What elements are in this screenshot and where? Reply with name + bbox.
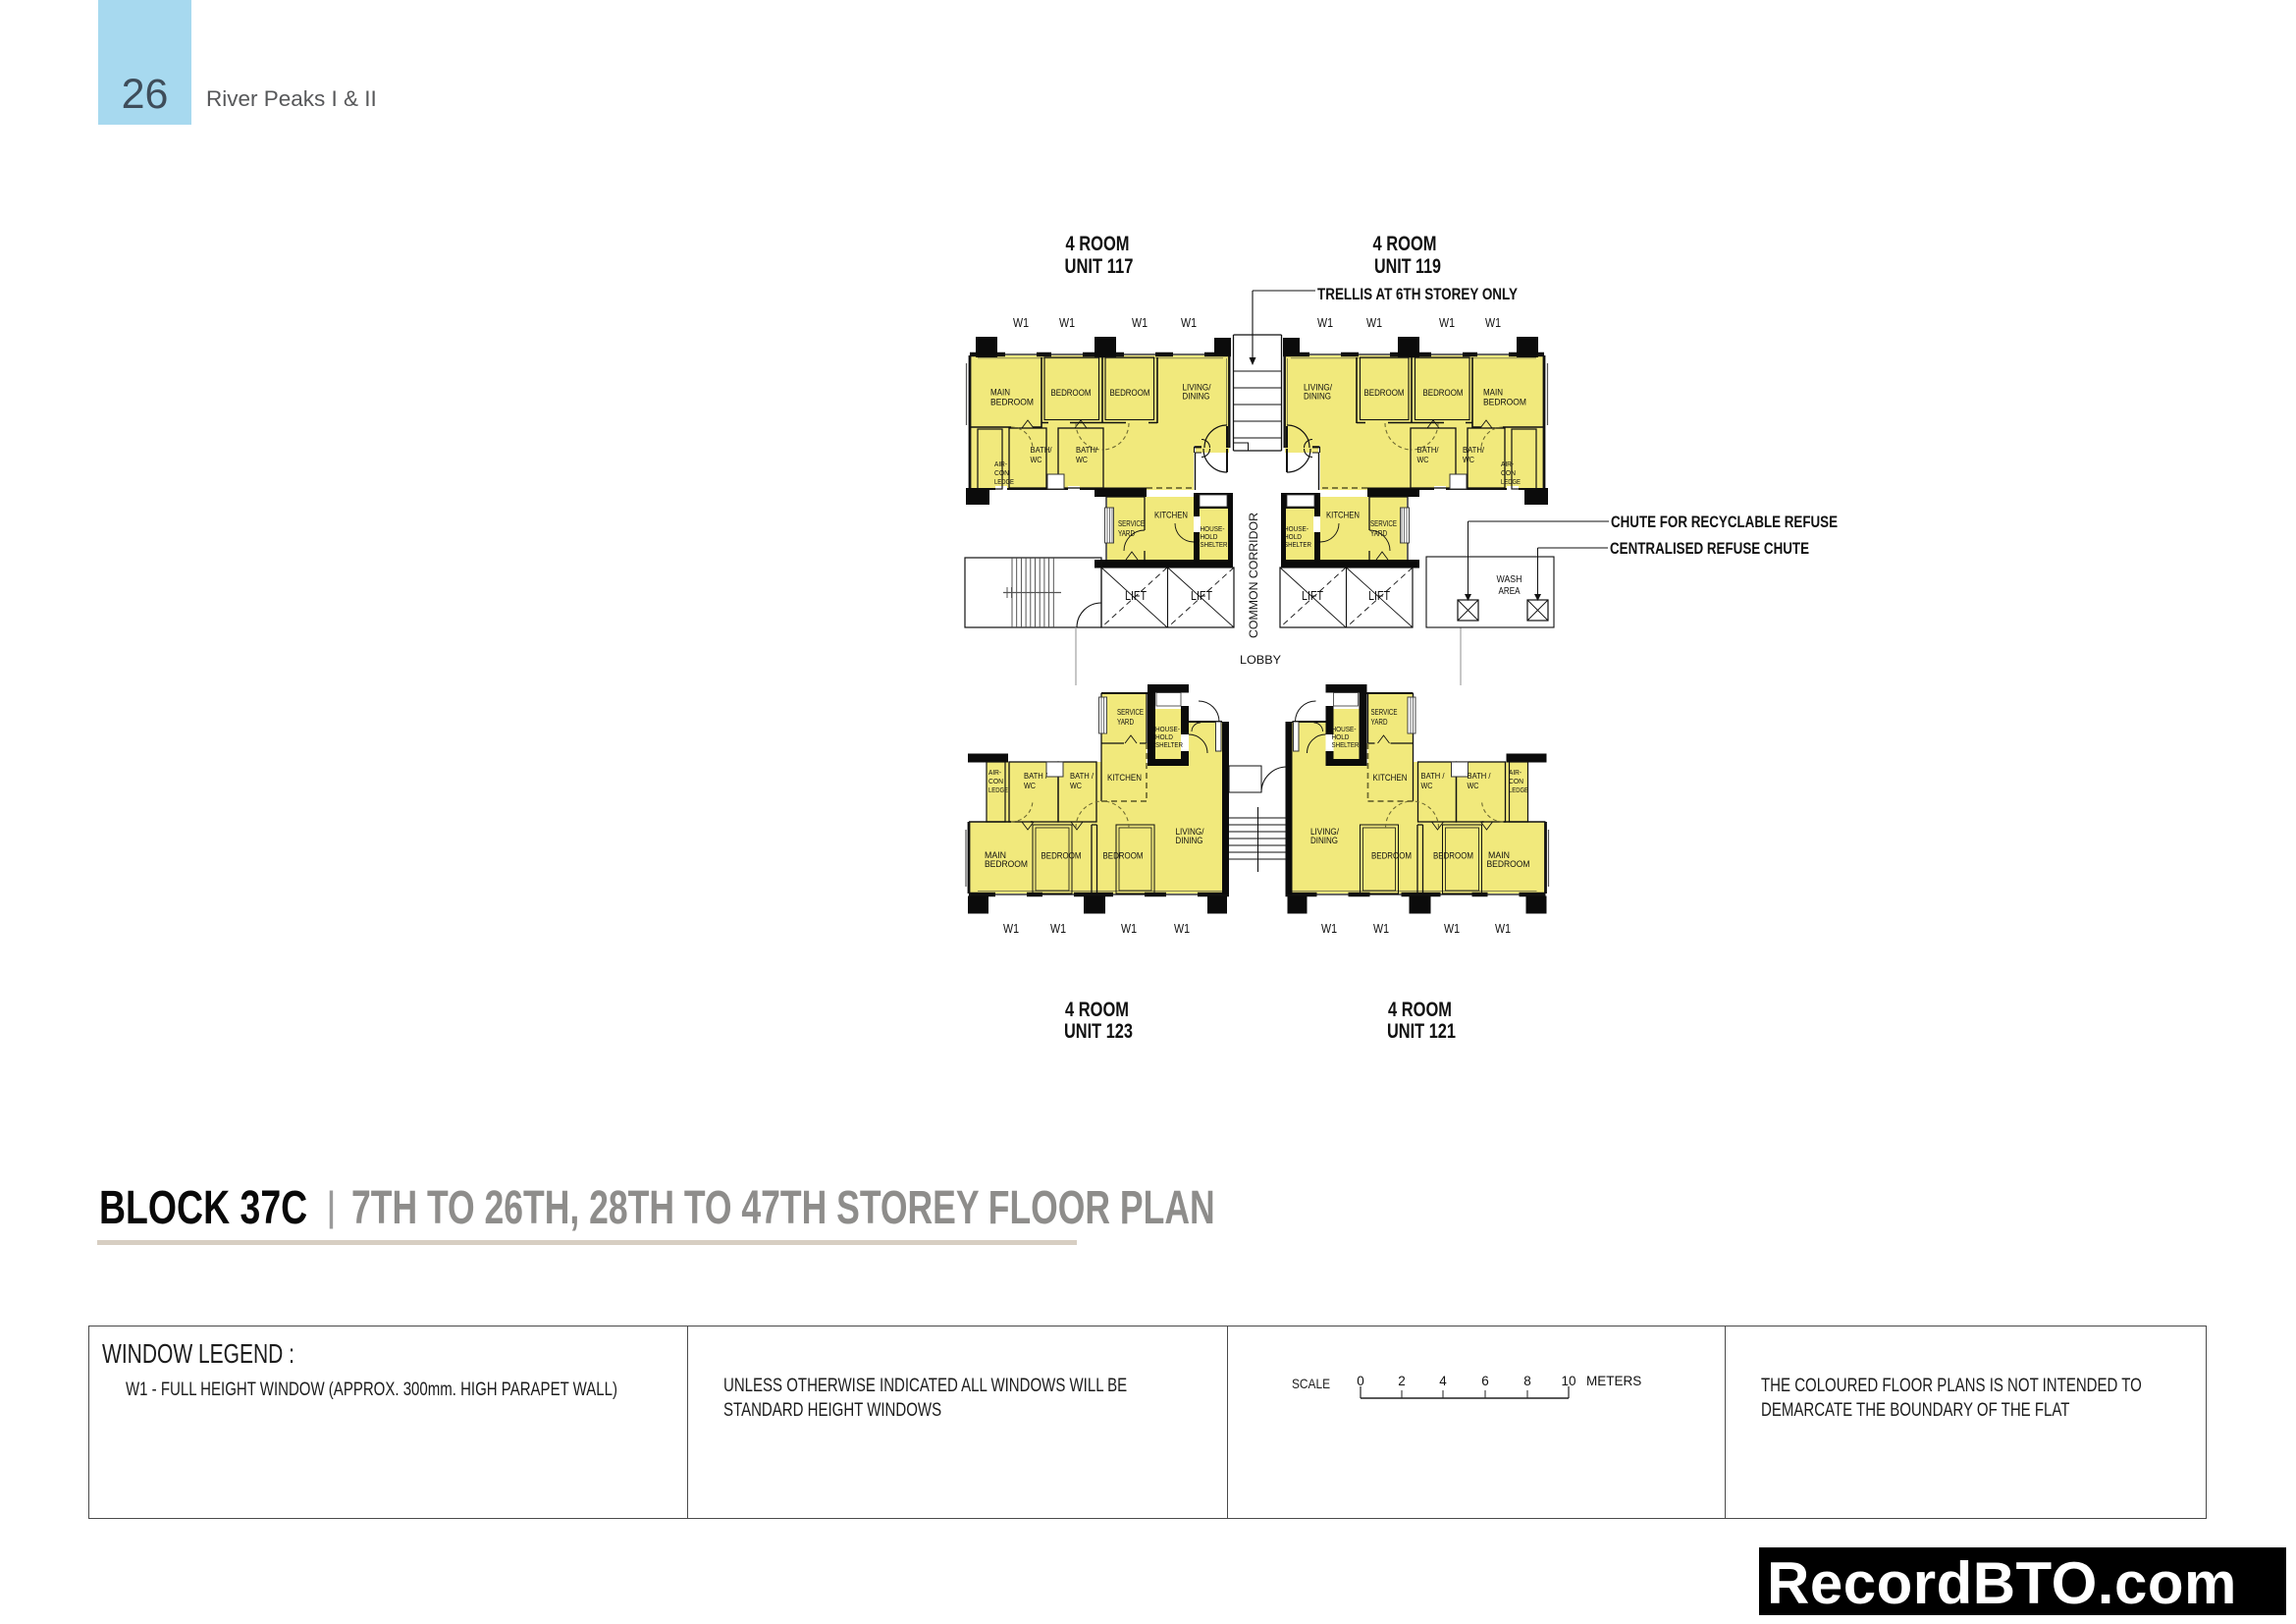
svg-text:CON: CON xyxy=(994,468,1009,477)
svg-text:KITCHEN: KITCHEN xyxy=(1154,511,1188,520)
svg-text:DINING: DINING xyxy=(1176,836,1203,845)
svg-text:AIR-: AIR- xyxy=(988,768,1002,777)
svg-text:BATH/: BATH/ xyxy=(1417,446,1440,455)
svg-text:BATH /: BATH / xyxy=(1024,772,1048,781)
svg-text:LIFT: LIFT xyxy=(1125,589,1147,603)
svg-text:SHELTER: SHELTER xyxy=(1155,740,1183,749)
svg-text:SERVICE: SERVICE xyxy=(1118,519,1145,528)
svg-text:W1: W1 xyxy=(1317,316,1333,330)
svg-text:4 ROOM: 4 ROOM xyxy=(1066,232,1130,255)
svg-text:SERVICE: SERVICE xyxy=(1371,708,1398,717)
svg-text:UNIT 121: UNIT 121 xyxy=(1387,1019,1456,1043)
svg-text:BATH /: BATH / xyxy=(1070,772,1095,781)
svg-text:WC: WC xyxy=(1417,456,1429,464)
svg-text:W1: W1 xyxy=(1013,316,1029,330)
svg-text:WASH: WASH xyxy=(1497,573,1522,585)
svg-text:COMMON CORRIDOR: COMMON CORRIDOR xyxy=(1247,513,1260,638)
svg-text:UNIT 119: UNIT 119 xyxy=(1374,254,1441,278)
svg-text:LEDGE: LEDGE xyxy=(1501,477,1521,486)
svg-text:LEDGE: LEDGE xyxy=(1509,785,1528,794)
svg-text:BATH/: BATH/ xyxy=(1463,446,1485,455)
svg-text:DINING: DINING xyxy=(1304,392,1331,402)
svg-text:BEDROOM: BEDROOM xyxy=(1371,851,1412,861)
svg-text:W1: W1 xyxy=(1181,316,1197,330)
svg-text:LIFT: LIFT xyxy=(1368,589,1390,603)
svg-text:SHELTER: SHELTER xyxy=(1201,540,1228,549)
svg-text:SERVICE: SERVICE xyxy=(1117,708,1144,717)
svg-text:DINING: DINING xyxy=(1310,836,1338,845)
svg-text:LIFT: LIFT xyxy=(1191,589,1212,603)
svg-text:DINING: DINING xyxy=(1183,392,1210,402)
svg-text:W1: W1 xyxy=(1495,922,1511,936)
svg-text:BEDROOM: BEDROOM xyxy=(1103,851,1144,861)
svg-text:WC: WC xyxy=(1076,456,1088,464)
svg-text:BEDROOM: BEDROOM xyxy=(1041,851,1082,861)
svg-text:YARD: YARD xyxy=(1370,529,1387,538)
svg-text:WC: WC xyxy=(1421,782,1433,790)
svg-text:BEDROOM: BEDROOM xyxy=(990,398,1034,407)
svg-text:LIFT: LIFT xyxy=(1302,589,1323,603)
svg-text:W1: W1 xyxy=(1485,316,1501,330)
svg-text:4 ROOM: 4 ROOM xyxy=(1065,998,1129,1021)
svg-text:MAIN: MAIN xyxy=(1483,388,1503,398)
svg-text:KITCHEN: KITCHEN xyxy=(1373,773,1408,783)
svg-text:YARD: YARD xyxy=(1118,529,1135,538)
svg-text:W1: W1 xyxy=(1003,922,1019,936)
svg-text:W1: W1 xyxy=(1132,316,1148,330)
svg-text:AIR-: AIR- xyxy=(1501,460,1515,468)
svg-text:W1: W1 xyxy=(1321,922,1337,936)
svg-text:BATH/: BATH/ xyxy=(1076,446,1098,455)
svg-text:2: 2 xyxy=(1398,1374,1406,1388)
svg-text:CENTRALISED REFUSE CHUTE: CENTRALISED REFUSE CHUTE xyxy=(1610,540,1809,558)
svg-text:0: 0 xyxy=(1357,1374,1364,1388)
svg-text:YARD: YARD xyxy=(1117,718,1134,727)
svg-text:4 ROOM: 4 ROOM xyxy=(1373,232,1437,255)
svg-text:W1: W1 xyxy=(1059,316,1075,330)
svg-text:6: 6 xyxy=(1481,1374,1489,1388)
svg-text:BEDROOM: BEDROOM xyxy=(1051,388,1092,398)
svg-text:LOBBY: LOBBY xyxy=(1240,655,1281,667)
svg-text:BEDROOM: BEDROOM xyxy=(1433,851,1473,861)
svg-text:8: 8 xyxy=(1523,1374,1531,1388)
svg-text:4: 4 xyxy=(1439,1374,1447,1388)
svg-text:BEDROOM: BEDROOM xyxy=(1364,388,1405,398)
svg-text:W1: W1 xyxy=(1373,922,1389,936)
svg-text:BATH /: BATH / xyxy=(1421,772,1446,781)
svg-text:W1: W1 xyxy=(1174,922,1190,936)
svg-text:SERVICE: SERVICE xyxy=(1370,519,1397,528)
svg-text:BATH /: BATH / xyxy=(1468,772,1492,781)
svg-text:SHELTER: SHELTER xyxy=(1332,740,1360,749)
svg-text:LEDGE: LEDGE xyxy=(988,785,1008,794)
svg-text:KITCHEN: KITCHEN xyxy=(1107,773,1142,783)
svg-text:SHELTER: SHELTER xyxy=(1284,540,1311,549)
svg-text:LEDGE: LEDGE xyxy=(994,477,1014,486)
svg-text:METERS: METERS xyxy=(1586,1374,1641,1388)
svg-text:WC: WC xyxy=(1070,782,1082,790)
svg-text:CHUTE FOR RECYCLABLE REFUSE: CHUTE FOR RECYCLABLE REFUSE xyxy=(1611,514,1838,531)
svg-text:CON: CON xyxy=(1501,468,1516,477)
svg-text:W1: W1 xyxy=(1444,922,1460,936)
svg-text:BEDROOM: BEDROOM xyxy=(985,859,1028,869)
svg-text:W1: W1 xyxy=(1366,316,1382,330)
svg-text:BEDROOM: BEDROOM xyxy=(1487,859,1530,869)
svg-text:BATH/: BATH/ xyxy=(1031,446,1053,455)
svg-text:AREA: AREA xyxy=(1499,585,1521,597)
svg-text:CON: CON xyxy=(988,777,1003,785)
svg-text:CON: CON xyxy=(1509,777,1523,785)
svg-text:MAIN: MAIN xyxy=(990,388,1010,398)
svg-text:W1: W1 xyxy=(1121,922,1137,936)
svg-text:KITCHEN: KITCHEN xyxy=(1326,511,1360,520)
svg-text:UNIT 123: UNIT 123 xyxy=(1064,1019,1133,1043)
svg-text:AIR-: AIR- xyxy=(994,460,1008,468)
svg-text:AIR-: AIR- xyxy=(1509,768,1522,777)
svg-text:W1: W1 xyxy=(1050,922,1066,936)
svg-text:TRELLIS AT 6TH STOREY ONLY: TRELLIS AT 6TH STOREY ONLY xyxy=(1317,286,1518,303)
svg-text:W1: W1 xyxy=(1439,316,1455,330)
svg-text:WC: WC xyxy=(1024,782,1036,790)
svg-text:WC: WC xyxy=(1463,456,1474,464)
svg-text:UNIT 117: UNIT 117 xyxy=(1065,254,1134,278)
svg-text:YARD: YARD xyxy=(1371,718,1388,727)
svg-text:BEDROOM: BEDROOM xyxy=(1423,388,1464,398)
svg-text:4 ROOM: 4 ROOM xyxy=(1388,998,1452,1021)
svg-text:10: 10 xyxy=(1561,1374,1575,1388)
svg-text:WC: WC xyxy=(1468,782,1479,790)
svg-text:WC: WC xyxy=(1031,456,1042,464)
svg-text:BEDROOM: BEDROOM xyxy=(1110,388,1150,398)
svg-text:BEDROOM: BEDROOM xyxy=(1483,398,1526,407)
